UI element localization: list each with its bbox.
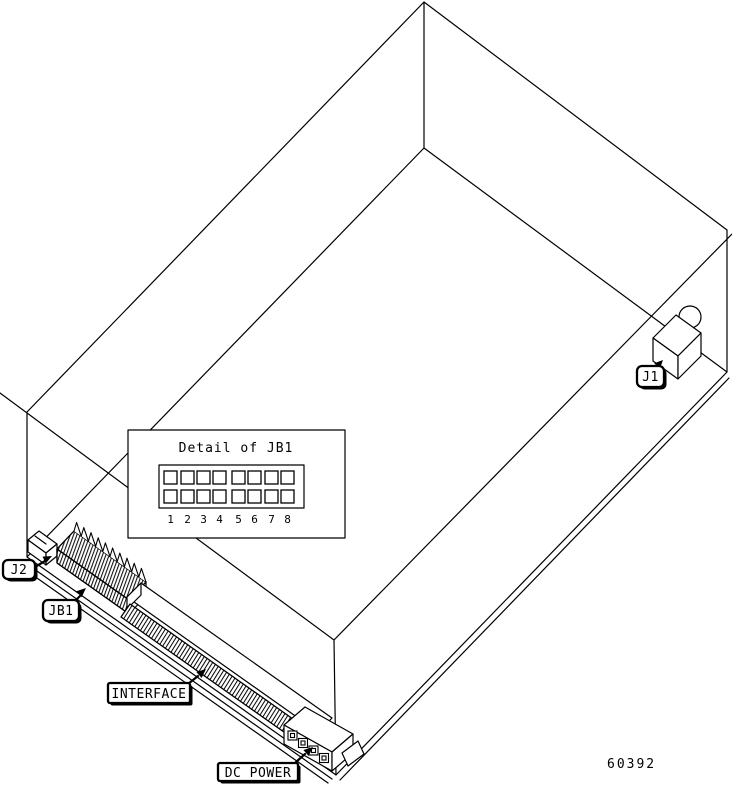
dc-power-pin: [301, 741, 305, 745]
technical-diagram: Detail of JB1 1 2 3 4 5 6 7 8 J2: [0, 0, 732, 786]
dc-power-pin: [291, 734, 295, 738]
dc-power-label-text: DC POWER: [225, 766, 292, 781]
pin-square: [164, 490, 177, 503]
enclosure-wireframe: [0, 2, 732, 783]
j2-label-text: J2: [11, 563, 28, 578]
pin-square: [213, 490, 226, 503]
pin-square: [197, 490, 210, 503]
pin-number: 6: [251, 513, 258, 526]
inset-title: Detail of JB1: [179, 441, 294, 456]
pin-number: 3: [200, 513, 207, 526]
interface-label-text: INTERFACE: [112, 687, 187, 702]
pin-square: [248, 490, 261, 503]
pin-number: 7: [268, 513, 275, 526]
pin-square: [232, 471, 245, 484]
pin-square: [232, 490, 245, 503]
detail-inset: Detail of JB1 1 2 3 4 5 6 7 8: [128, 430, 345, 538]
dc-power-pin: [322, 756, 326, 760]
j1-label-text: J1: [642, 370, 659, 385]
figure-page: Detail of JB1 1 2 3 4 5 6 7 8 J2: [0, 0, 732, 786]
enclosure-outline: [0, 2, 732, 783]
label-jb1: JB1: [43, 588, 86, 624]
pin-square: [197, 471, 210, 484]
pin-square: [265, 471, 278, 484]
jb1-label-text: JB1: [49, 604, 74, 619]
label-interface: INTERFACE: [108, 669, 206, 706]
dc-power-pin: [312, 749, 316, 753]
pin-number: 2: [184, 513, 191, 526]
pin-square: [181, 471, 194, 484]
pin-square: [248, 471, 261, 484]
pin-number: 8: [284, 513, 291, 526]
jb1-arrow-icon: [76, 588, 86, 597]
pin-square: [265, 490, 278, 503]
pin-square: [181, 490, 194, 503]
pin-number: 1: [167, 513, 174, 526]
pin-square: [164, 471, 177, 484]
pin-square: [213, 471, 226, 484]
pin-square: [281, 471, 294, 484]
pin-square: [281, 490, 294, 503]
figure-number: 60392: [607, 757, 656, 772]
pin-number: 5: [235, 513, 242, 526]
pin-number: 4: [216, 513, 223, 526]
interface-contact-teeth: [121, 604, 300, 737]
